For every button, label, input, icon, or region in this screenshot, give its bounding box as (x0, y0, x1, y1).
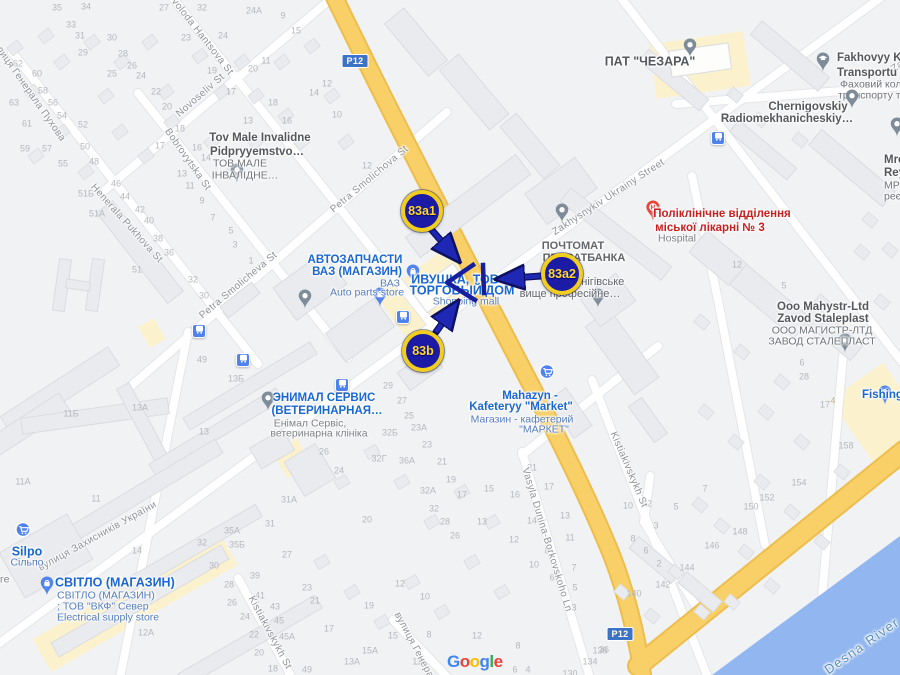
svitlo-label[interactable]: СВІТЛО (МАГАЗИН) (55, 576, 175, 589)
house-number: 28 (440, 517, 450, 526)
fishing-store-label[interactable]: Fishing s (862, 389, 900, 401)
house-number: 11 (185, 181, 194, 190)
house-number: 8 (630, 534, 635, 543)
school-pin-pin[interactable] (298, 288, 313, 315)
house-number: 27 (397, 396, 407, 405)
pochtomat-pin[interactable] (555, 202, 570, 229)
mrev-label[interactable]: Rey (884, 167, 900, 179)
house-number: 12 (472, 631, 482, 640)
house-number: 11 (261, 56, 270, 65)
house-number: 60 (32, 69, 42, 78)
house-number: 15А (362, 646, 378, 655)
bus-stop-icon[interactable] (396, 310, 410, 324)
tov-male-invalidne-label[interactable]: ІНВАЛІДНЕ… (212, 170, 278, 181)
chezara-label[interactable]: ПАТ "ЧЕЗАРА" (605, 55, 696, 68)
house-number: 15 (484, 484, 494, 493)
house-number: 24А (246, 6, 262, 15)
market-kafeteryy-pin[interactable] (539, 364, 555, 385)
house-number: 36 (599, 645, 609, 654)
house-number: 30 (199, 291, 209, 300)
house-number: 30 (107, 33, 117, 42)
house-number: 15 (291, 26, 301, 35)
house-number: 7 (702, 484, 707, 493)
svitlo-label[interactable]: Electrical supply store (57, 612, 159, 623)
house-number: 17 (226, 87, 236, 96)
tov-male-invalidne-label[interactable]: Tov Male Invalidne (209, 132, 310, 144)
house-number: 20 (248, 64, 258, 73)
house-number: 43 (270, 602, 280, 611)
map-canvas[interactable]: 3534273224А93331302324152928262011252419… (0, 0, 900, 675)
river-label: Desna River (822, 615, 900, 675)
house-number: 35А (224, 526, 240, 535)
house-number: 19 (446, 475, 456, 484)
house-number: 12А (138, 628, 154, 637)
house-number: 13 (477, 517, 487, 526)
house-number: 3 (653, 521, 658, 530)
house-number: 25 (107, 69, 117, 78)
house-number: 32Г (372, 454, 387, 463)
tov-male-invalidne-label[interactable]: ТОВ МАЛЕ (213, 158, 267, 169)
route-badge: P12 (607, 627, 634, 641)
house-number: 19 (364, 601, 374, 610)
house-number: 9 (280, 11, 285, 20)
house-number: 16 (510, 490, 520, 499)
house-number: 12 (509, 535, 519, 544)
mrev-label[interactable]: реєс (884, 191, 900, 202)
svitlo-pin[interactable] (40, 575, 55, 602)
ivushka-mall-label[interactable]: Shopping mall (433, 296, 500, 307)
bus-stop-icon[interactable] (335, 378, 349, 392)
house-number: 52 (78, 120, 88, 129)
mahystr-label[interactable]: ЗАВОД СТАЛЕПЛАСТ (768, 336, 875, 347)
house-number: 45 (274, 616, 284, 625)
house-number: 11А (15, 477, 30, 486)
house-number: 20 (254, 648, 264, 657)
house-number: 32 (188, 275, 198, 284)
house-number: 8 (515, 641, 520, 650)
house-number: 31 (265, 519, 275, 528)
house-number: 59 (20, 144, 30, 153)
house-number: 18 (175, 124, 185, 133)
avtozapchasti-vaz-label[interactable]: ВАЗ (МАГАЗИН) (312, 266, 402, 278)
house-number: 14 (132, 546, 142, 555)
house-number: 152 (759, 493, 774, 502)
house-number: 21 (437, 457, 447, 466)
marker-83b[interactable]: 83b (402, 330, 444, 372)
mrev-label[interactable]: Mre (884, 154, 900, 166)
house-number: 13 (243, 116, 253, 125)
google-logo-letter: G (447, 652, 460, 671)
house-number: 6 (799, 358, 804, 367)
house-number: 28 (224, 580, 234, 589)
house-number: 6 (512, 665, 517, 674)
house-number: 45А (279, 632, 295, 641)
house-number: 18 (268, 98, 278, 107)
house-number: 15 (388, 631, 398, 640)
house-number: 46 (111, 179, 121, 188)
house-number: 130 (562, 669, 577, 675)
pochtomat-label[interactable]: ПОЧТОМАТ (542, 241, 604, 253)
mahystr-label[interactable]: Ooo Mahystr-Ltd (777, 301, 869, 313)
house-number: 22 (151, 87, 161, 96)
house-number: 5 (673, 502, 678, 511)
house-number: 21 (310, 596, 320, 605)
house-number: 42 (135, 205, 145, 214)
house-number: 25 (404, 411, 414, 420)
house-number: 4 (830, 396, 835, 405)
house-number: 32 (429, 504, 439, 513)
fakhovyy-koledzh-label[interactable]: Transportu Ta (837, 67, 900, 79)
silpo-pin[interactable] (15, 522, 31, 543)
house-number: 63 (9, 98, 19, 107)
house-number: 24 (334, 466, 344, 475)
radiomekhanicheskiy-label[interactable]: Radiomekhanicheskiy… (721, 113, 853, 125)
house-number: 49 (197, 355, 207, 364)
fakhovyy-koledzh-pin[interactable] (816, 51, 831, 78)
mahystr-label[interactable]: Zavod Staleplast (777, 313, 868, 325)
house-number: 31 (75, 31, 85, 40)
market-kafeteryy-label[interactable]: Kafeteryy "Market" (469, 401, 573, 413)
house-number: 23 (181, 33, 191, 42)
house-number: 3 (232, 240, 237, 249)
house-number: 30 (209, 561, 219, 570)
house-number: 10 (529, 560, 539, 569)
street-label: Petra Smolichova St (329, 144, 411, 215)
street-label: Novoseliv St (175, 72, 227, 120)
house-number: 13Б (228, 374, 244, 383)
house-number: 61 (22, 119, 32, 128)
marker-83a2[interactable]: 83a2 (541, 253, 583, 295)
edge-fragment-label[interactable]: ге (0, 574, 9, 585)
marker-83a1[interactable]: 83a1 (401, 190, 443, 232)
house-number: 51 (132, 265, 142, 274)
enimal-servis-label[interactable]: ветеринарна клініка (270, 428, 367, 439)
house-number: 5 (781, 281, 786, 290)
house-number: 16 (282, 116, 292, 125)
house-number: 2 (656, 559, 661, 568)
house-number: 36 (164, 248, 174, 257)
house-number: 32А (420, 486, 436, 495)
house-number: 134 (582, 657, 597, 666)
house-number: 140 (626, 589, 641, 598)
house-number: 29 (383, 381, 393, 390)
silpo-label[interactable]: Сільпо (10, 557, 43, 568)
house-number: 18 (268, 664, 278, 673)
google-logo-letter: g (480, 652, 490, 671)
house-number: 13А (132, 403, 148, 412)
street-label: вулиця Генерала Пухова (0, 36, 67, 144)
house-number: 154 (791, 478, 806, 487)
house-number: 158 (838, 441, 853, 450)
house-number: 28 (118, 49, 128, 58)
market-kafeteryy-label[interactable]: "МАРКЕТ" (519, 424, 569, 435)
route-badge: P12 (342, 54, 369, 68)
house-number: 24 (136, 71, 146, 80)
house-number: 32 (197, 3, 207, 12)
poliklinika-label[interactable]: Поліклінічне відділення (653, 208, 790, 220)
house-number: 146 (704, 541, 719, 550)
map-overlay: 3534273224А93331302324152928262011252419… (0, 0, 900, 675)
house-number: 5 (228, 226, 233, 235)
house-number: 24 (218, 31, 228, 40)
house-number: 36А (399, 456, 415, 465)
house-number: 17 (324, 624, 334, 633)
house-number: 23А (411, 423, 427, 432)
house-number: 142 (655, 580, 670, 589)
google-logo[interactable]: Google (447, 652, 503, 672)
house-number: 38 (153, 234, 163, 243)
house-number: 58 (38, 86, 48, 95)
house-number: 17 (155, 141, 165, 150)
house-number: 48 (89, 157, 99, 166)
enimal-servis-label[interactable]: ЭНИМАЛ СЕРВИС (273, 392, 376, 404)
house-number: 40 (144, 216, 154, 225)
house-number: 56 (48, 98, 58, 107)
house-number: 12 (395, 579, 405, 588)
house-number: 11 (565, 533, 574, 542)
google-logo-letter: e (494, 652, 503, 671)
house-number: 144 (679, 563, 694, 572)
house-number: 22 (249, 630, 259, 639)
enimal-servis-label[interactable]: (ВЕТЕРИНАРНАЯ… (271, 405, 382, 417)
house-number: 27 (282, 550, 292, 559)
house-number: 20 (362, 515, 372, 524)
house-number: 12 (322, 79, 332, 88)
house-number: 4 (525, 665, 530, 674)
house-number: 13 (560, 511, 570, 520)
house-number: 11Б (63, 409, 78, 418)
mrev-pin[interactable] (890, 116, 900, 143)
house-number: 5 (572, 583, 577, 592)
bus-stop-icon[interactable] (192, 324, 206, 338)
house-number: 11 (91, 494, 100, 503)
house-number: 20 (162, 102, 172, 111)
house-number: 26 (319, 447, 329, 456)
house-number: 34 (81, 2, 91, 11)
house-number: 54 (57, 111, 67, 120)
house-number: 49 (302, 665, 312, 674)
house-number: 12 (362, 161, 372, 170)
street-label: вулиця Захисників України (37, 500, 159, 574)
house-number: 51А (89, 209, 105, 218)
house-number: 10 (623, 501, 633, 510)
house-number: 26 (450, 531, 460, 540)
house-number: 32Б (382, 428, 398, 437)
house-number: 13 (199, 427, 209, 436)
house-number: 10 (332, 110, 342, 119)
house-number: 9 (199, 196, 204, 205)
house-number: 17 (544, 482, 554, 491)
house-number: 148 (732, 527, 747, 536)
house-number: 35Б (229, 540, 245, 549)
poliklinika-label[interactable]: Hospital (658, 233, 696, 244)
google-logo-letter: o (470, 652, 480, 671)
house-number: 27 (159, 3, 169, 12)
house-number: 39 (250, 571, 260, 580)
house-number: 33 (66, 20, 76, 29)
house-number: 44 (120, 192, 130, 201)
house-number: 7 (210, 213, 215, 222)
house-number: 50 (80, 142, 90, 151)
house-number: 35 (52, 3, 62, 12)
house-number: 23 (302, 583, 312, 592)
house-number: 28 (799, 372, 809, 381)
house-number: 13 (177, 169, 187, 178)
house-number: 7 (571, 563, 576, 572)
house-number: 1 (248, 256, 253, 265)
house-number: 150 (743, 502, 758, 511)
house-number: 8 (426, 630, 431, 639)
house-number: 13А (344, 657, 360, 666)
house-number: 57 (42, 144, 52, 153)
house-number: 23 (422, 440, 432, 449)
street-label: Zakhysnykiv Ukrainy St (890, 5, 900, 75)
house-number: 24 (240, 612, 250, 621)
house-number: 10 (420, 592, 430, 601)
house-number: 29 (78, 48, 88, 57)
house-number: 26 (227, 598, 237, 607)
street-label: Kistiakivskykh St (607, 431, 648, 510)
house-number: 55 (58, 159, 68, 168)
house-number: 14 (309, 88, 319, 97)
house-number: 12 (732, 260, 742, 269)
avtozapchasti-vaz-label[interactable]: АВТОЗАПЧАСТИ (308, 254, 403, 266)
bus-stop-icon[interactable] (711, 131, 725, 145)
avtozapchasti-vaz-label[interactable]: Auto parts store (330, 287, 404, 298)
radiomekhanicheskiy-label[interactable]: Chernigovskiy (768, 101, 847, 113)
house-number: 17 (820, 400, 830, 409)
house-number: 32 (197, 538, 207, 547)
house-number: 17 (457, 490, 467, 499)
fakhovyy-koledzh-label[interactable]: Fakhovyy Kole (837, 52, 900, 64)
google-logo-letter: o (460, 652, 470, 671)
house-number: 6 (643, 546, 648, 555)
house-number: 31А (281, 495, 297, 504)
street-label: Petra Smolicheva St (198, 250, 280, 321)
tov-male-invalidne-label[interactable]: Pidpryyemstvo… (210, 146, 304, 158)
bus-stop-icon[interactable] (236, 353, 250, 367)
